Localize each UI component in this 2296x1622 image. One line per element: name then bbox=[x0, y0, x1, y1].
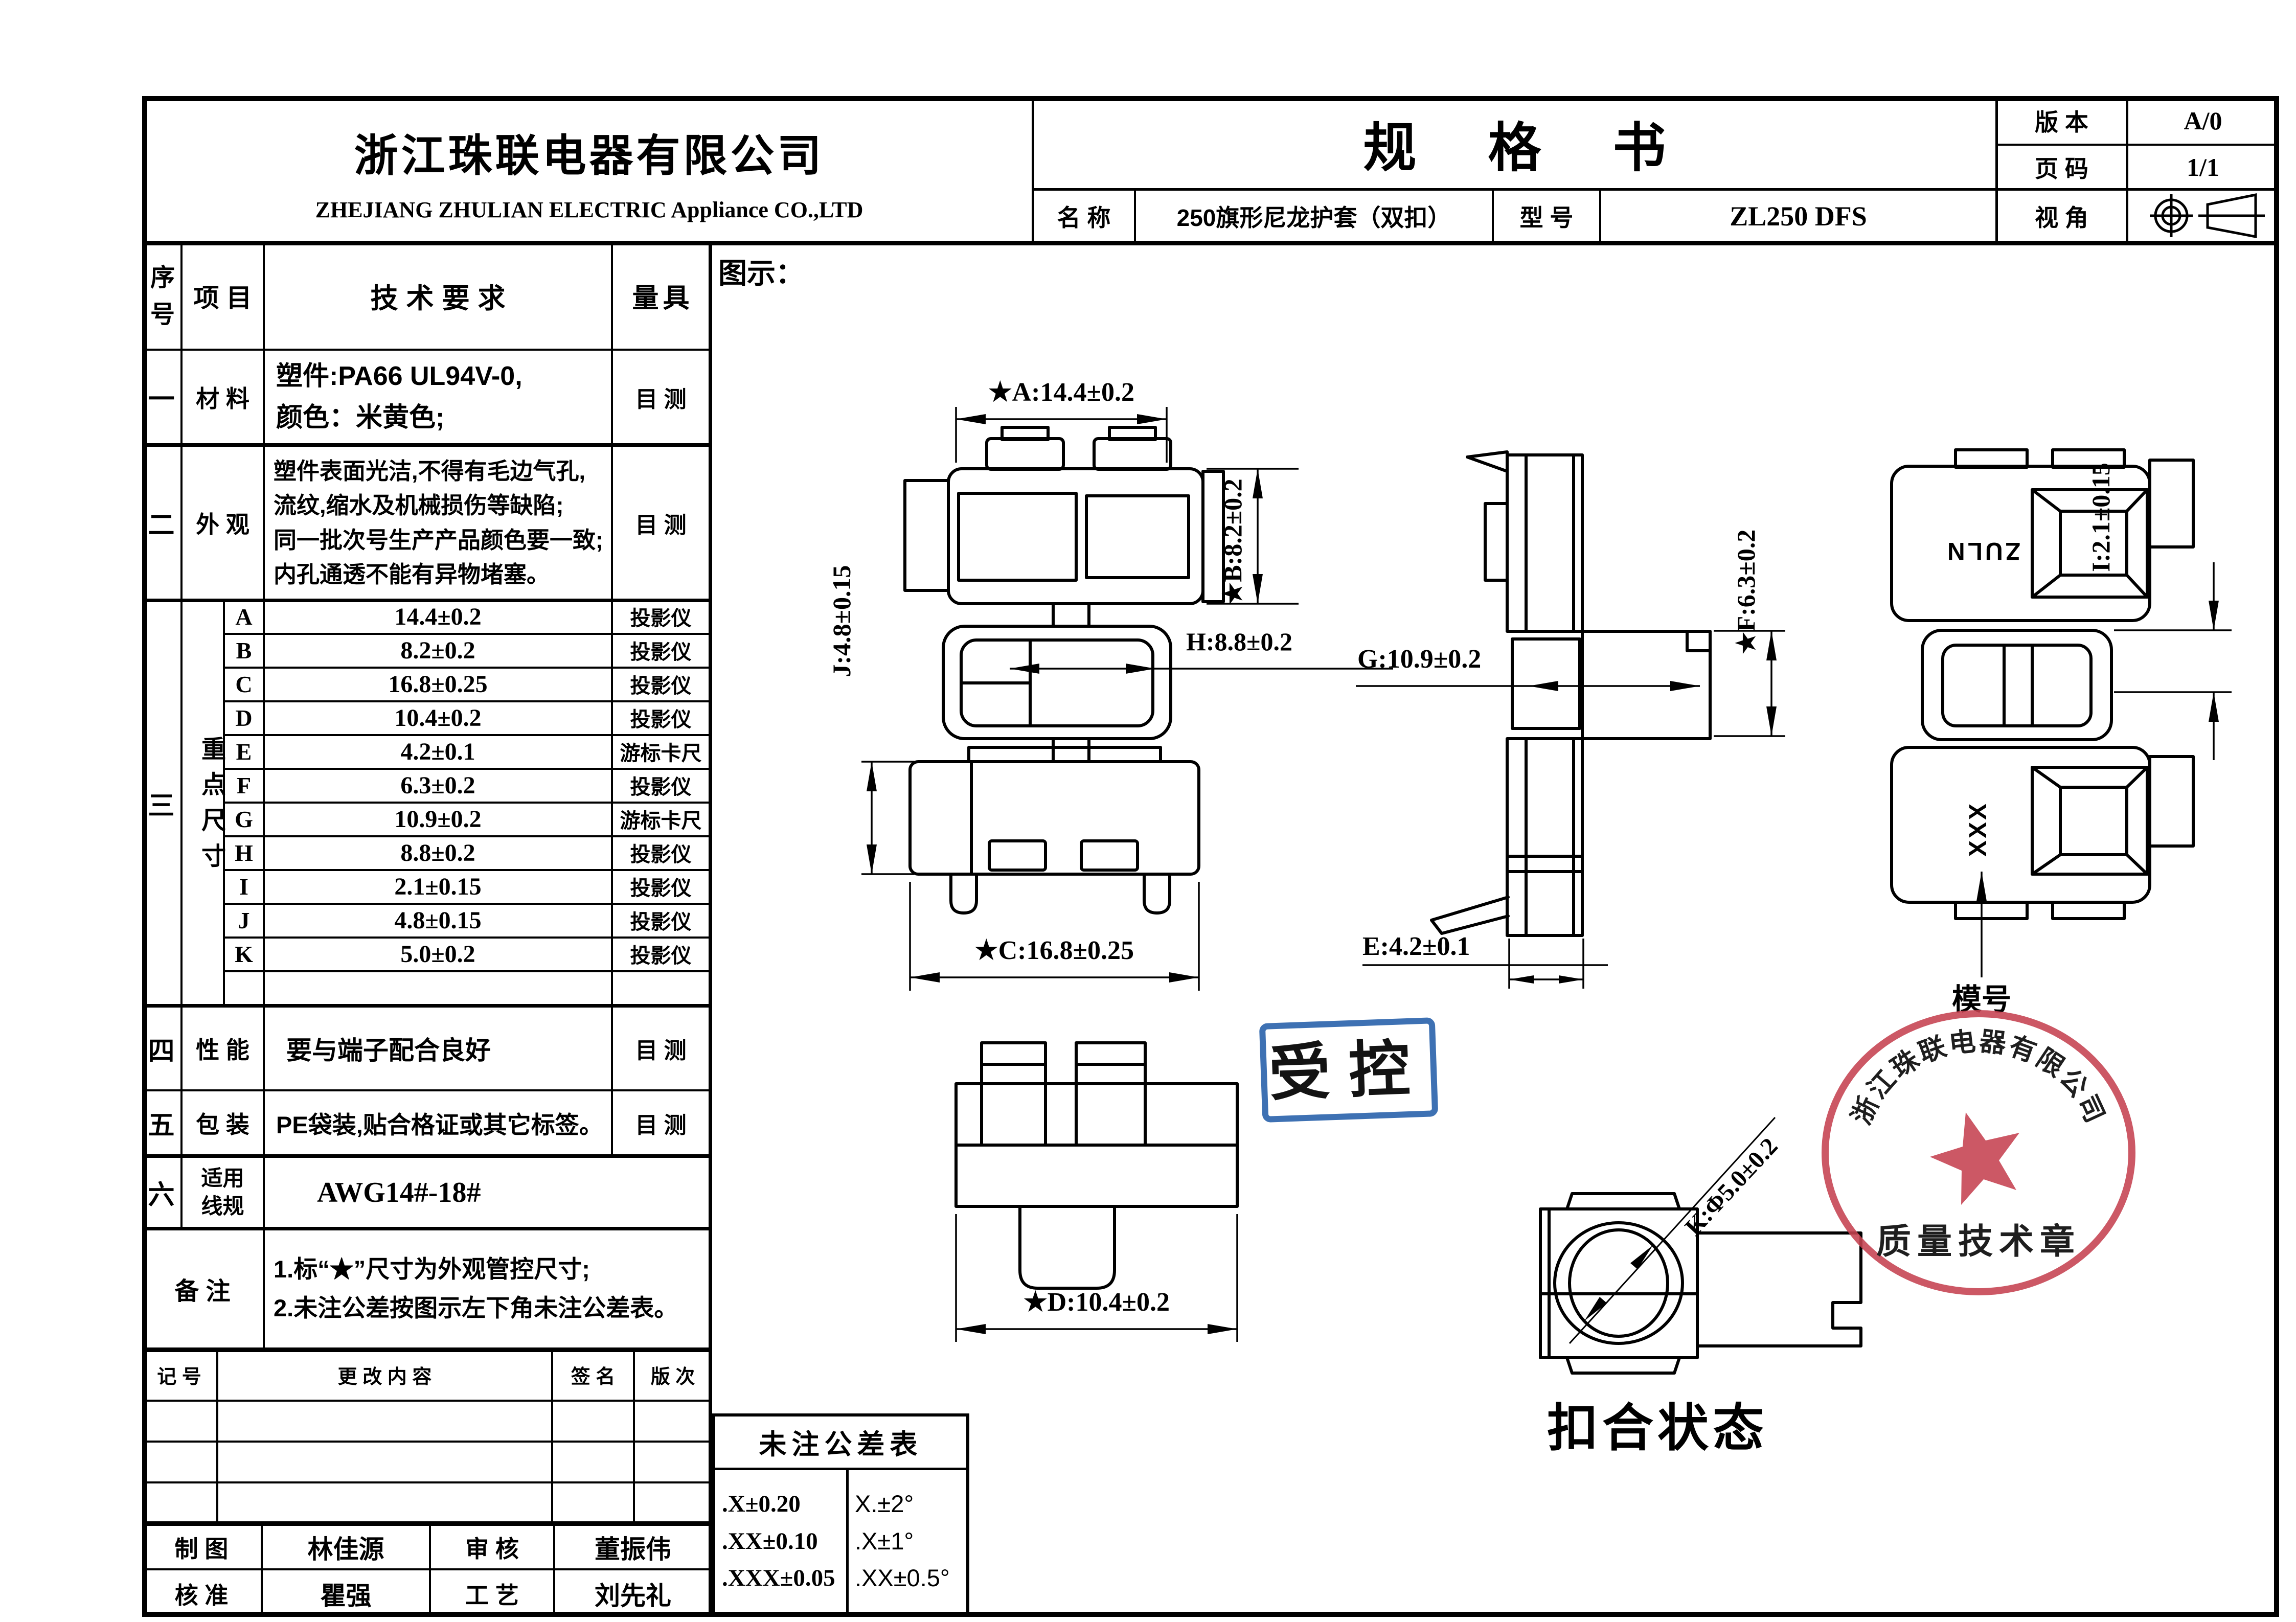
name-value: 250旗形尼龙护套（双扣） bbox=[1135, 189, 1493, 243]
dim-row-gauge: 投影仪 bbox=[613, 634, 709, 667]
side-view bbox=[1431, 452, 1710, 935]
dim-row-letter: J bbox=[225, 904, 263, 936]
dim-label-G: G:10.9±0.2 bbox=[1357, 645, 1481, 674]
dim-row-letter: H bbox=[225, 836, 263, 869]
dim-label-E: E:4.2±0.1 bbox=[1362, 932, 1470, 961]
row2-item: 外 观 bbox=[183, 447, 263, 599]
dims-seq: 三 bbox=[142, 602, 180, 1004]
revision-mark-header: 记 号 bbox=[142, 1350, 216, 1400]
dim-label-A: ★A:14.4±0.2 bbox=[988, 378, 1134, 407]
remark-label: 备 注 bbox=[142, 1229, 263, 1347]
row2-gauge: 目 测 bbox=[613, 447, 709, 599]
revision-sign-header: 签 名 bbox=[553, 1350, 633, 1400]
dim-row-letter: D bbox=[225, 701, 263, 734]
controlled-stamp-text: 受控 bbox=[1268, 1034, 1429, 1108]
row5-gauge: 目 测 bbox=[613, 1091, 709, 1154]
dim-label-C: ★C:16.8±0.25 bbox=[974, 936, 1134, 965]
marking-zuln: ZULN bbox=[1945, 537, 2020, 564]
page-value: 1/1 bbox=[2127, 145, 2279, 189]
signoff-approve-name: 瞿强 bbox=[263, 1570, 429, 1617]
spec-sheet-page: 浙江珠联电器有限公司 ZHEJIANG ZHULIAN ELECTRIC App… bbox=[0, 0, 2296, 1622]
dim-row-gauge: 投影仪 bbox=[613, 938, 709, 970]
signoff-check-name: 董振伟 bbox=[555, 1526, 711, 1568]
company-block: 浙江珠联电器有限公司 ZHEJIANG ZHULIAN ELECTRIC App… bbox=[148, 102, 1030, 240]
page-label: 页 码 bbox=[1996, 145, 2127, 189]
dim-row-value: 8.8±0.2 bbox=[265, 836, 611, 869]
view-angle-label: 视 角 bbox=[1996, 189, 2127, 243]
dim-label-B: ★B:8.2±0.2 bbox=[1218, 478, 1247, 605]
dim-row-gauge: 投影仪 bbox=[613, 668, 709, 700]
dim-row-value: 16.8±0.25 bbox=[265, 668, 611, 700]
dim-row-value: 8.2±0.2 bbox=[265, 634, 611, 667]
quality-stamp: 浙江珠联电器有限公司 质量技术章 bbox=[1825, 1014, 2132, 1292]
row2-requirement: 塑件表面光洁,不得有毛边气孔,流纹,缩水及机械损伤等缺陷;同一批次号生产产品颜色… bbox=[274, 447, 611, 599]
model-label: 型 号 bbox=[1493, 189, 1600, 243]
dim-row-value: 10.9±0.2 bbox=[265, 803, 611, 835]
dim-row-gauge: 投影仪 bbox=[613, 904, 709, 936]
dim-label-I: I:2.1±0.15 bbox=[2086, 463, 2115, 572]
row5-seq: 五 bbox=[142, 1091, 180, 1154]
dim-label-D: ★D:10.4±0.2 bbox=[1024, 1288, 1170, 1317]
signoff-approve-label: 核 准 bbox=[142, 1570, 261, 1617]
signoff-process-label: 工 艺 bbox=[431, 1570, 553, 1617]
dim-label-K: K:Φ5.0±0.2 bbox=[1680, 1133, 1783, 1241]
dim-row-letter: E bbox=[225, 735, 263, 768]
dim-row-gauge: 投影仪 bbox=[613, 870, 709, 903]
row5-requirement: PE袋装,贴合格证或其它标签。 bbox=[276, 1091, 608, 1154]
dim-row-letter: B bbox=[225, 634, 263, 667]
dim-row-value: 14.4±0.2 bbox=[265, 600, 611, 633]
row6-item: 适用线规 bbox=[183, 1158, 263, 1227]
company-name-en: ZHEJIANG ZHULIAN ELECTRIC Appliance CO.,… bbox=[315, 197, 863, 223]
dim-row-letter: C bbox=[225, 668, 263, 700]
col-header-req: 技术要求 bbox=[265, 243, 611, 349]
signoff-draw-label: 制 图 bbox=[142, 1526, 261, 1568]
bottom-view bbox=[956, 1043, 1237, 1288]
dim-row-gauge: 投影仪 bbox=[613, 600, 709, 633]
row4-item: 性 能 bbox=[183, 1008, 263, 1089]
dim-row-gauge: 投影仪 bbox=[613, 701, 709, 734]
col-header-item: 项目 bbox=[183, 243, 263, 349]
signoff-process-name: 刘先礼 bbox=[555, 1570, 711, 1617]
dim-row-gauge: 游标卡尺 bbox=[613, 803, 709, 835]
dim-row-gauge: 投影仪 bbox=[613, 769, 709, 802]
version-label: 版 本 bbox=[1996, 96, 2127, 145]
dim-row-letter: F bbox=[225, 769, 263, 802]
dim-row-gauge: 游标卡尺 bbox=[613, 735, 709, 768]
row6-requirement: AWG14#-18# bbox=[317, 1158, 675, 1227]
technical-drawing: ★A:14.4±0.2 ★B:8.2±0.2 J:4.8±0.15 H:8.8±… bbox=[711, 243, 2279, 1617]
dim-label-H: H:8.8±0.2 bbox=[1186, 627, 1292, 656]
model-value: ZL250 DFS bbox=[1600, 189, 1996, 243]
row1-requirement: 塑件:PA66 UL94V-0,颜色：米黄色; bbox=[276, 351, 611, 443]
revision-content-header: 更 改 内 容 bbox=[218, 1350, 551, 1400]
first-angle-projection-icon bbox=[2127, 189, 2279, 243]
dim-row-letter: A bbox=[225, 600, 263, 633]
row2-seq: 二 bbox=[142, 447, 180, 599]
marking-xxx: XXX bbox=[1965, 802, 1992, 857]
col-header-gauge: 量具 bbox=[613, 243, 709, 349]
dims-item: 重点尺寸 bbox=[201, 664, 226, 943]
col-header-seq: 序号 bbox=[147, 253, 178, 340]
dim-row-value: 2.1±0.15 bbox=[265, 870, 611, 903]
dim-row-value: 4.8±0.15 bbox=[265, 904, 611, 936]
remark-text: 1.标“★”尺寸为外观管控尺寸;2.未注公差按图示左下角未注公差表。 bbox=[274, 1229, 708, 1347]
dim-row-gauge: 投影仪 bbox=[613, 836, 709, 869]
right-view: ZULN XXX bbox=[1892, 450, 2193, 919]
revision-rev-header: 版 次 bbox=[635, 1350, 711, 1400]
dim-row-value: 10.4±0.2 bbox=[265, 701, 611, 734]
dim-row-letter: I bbox=[225, 870, 263, 903]
row6-seq: 六 bbox=[142, 1158, 180, 1227]
row4-seq: 四 bbox=[142, 1008, 180, 1089]
signoff-draw-name: 林佳源 bbox=[263, 1526, 429, 1568]
row1-item: 材 料 bbox=[183, 351, 263, 443]
row4-requirement: 要与端子配合良好 bbox=[286, 1008, 608, 1089]
signoff-check-label: 审 核 bbox=[431, 1526, 553, 1568]
dim-row-value: 5.0±0.2 bbox=[265, 938, 611, 970]
row4-gauge: 目 测 bbox=[613, 1008, 709, 1089]
dim-row-value: 6.3±0.2 bbox=[265, 769, 611, 802]
dim-label-F: ★F:6.3±0.2 bbox=[1732, 530, 1760, 654]
quality-stamp-star bbox=[1930, 1112, 2019, 1205]
dim-row-letter: G bbox=[225, 803, 263, 835]
front-view bbox=[905, 427, 1223, 913]
quality-stamp-title: 质量技术章 bbox=[1876, 1222, 2081, 1261]
dim-label-J: J:4.8±0.15 bbox=[827, 565, 856, 677]
name-label: 名 称 bbox=[1033, 189, 1135, 243]
latched-state-label: 扣合状态 bbox=[1547, 1400, 1768, 1457]
row1-seq: 一 bbox=[142, 351, 180, 443]
doc-title: 规格书 bbox=[1033, 96, 1996, 189]
dim-row-value: 4.2±0.1 bbox=[265, 735, 611, 768]
version-value: A/0 bbox=[2127, 96, 2279, 145]
row5-item: 包 装 bbox=[183, 1091, 263, 1154]
controlled-stamp: 受控 bbox=[1262, 1020, 1435, 1119]
company-name-cn: 浙江珠联电器有限公司 bbox=[354, 120, 825, 184]
dim-row-letter: K bbox=[225, 938, 263, 970]
row1-gauge: 目 测 bbox=[613, 351, 709, 443]
